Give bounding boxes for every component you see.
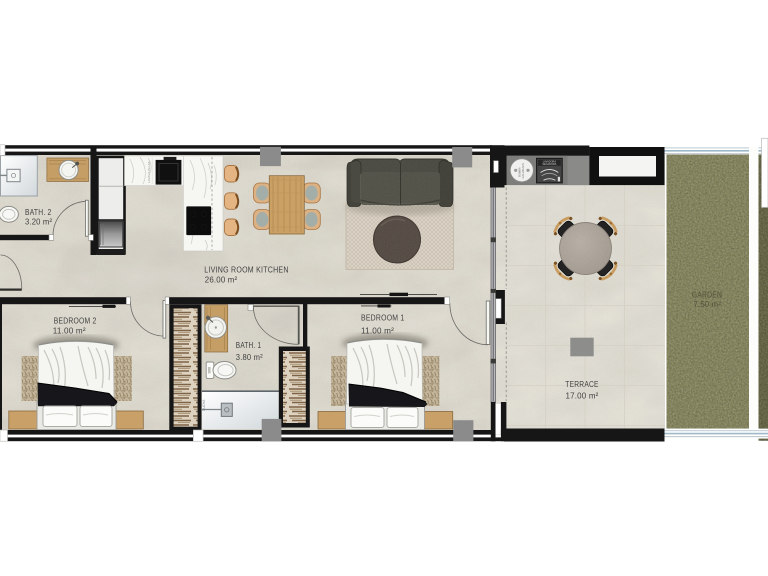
svg-text:SECADORA: SECADORA: [542, 163, 556, 166]
svg-text:LAVAVAJILLAS: LAVAVAJILLAS: [147, 161, 151, 183]
svg-text:BEDROOM 2: BEDROOM 2: [54, 316, 97, 326]
svg-text:BOMBA: BOMBA: [517, 167, 521, 177]
svg-text:11.00 m²: 11.00 m²: [53, 326, 86, 336]
svg-text:BEDROOM 1: BEDROOM 1: [361, 313, 405, 323]
svg-text:LIVING ROOM KITCHEN: LIVING ROOM KITCHEN: [204, 264, 288, 274]
svg-text:BATH. 2: BATH. 2: [25, 207, 52, 217]
svg-text:DUCHA: DUCHA: [202, 399, 206, 411]
svg-text:11.00 m²: 11.00 m²: [361, 325, 394, 335]
svg-text:3.80 m²: 3.80 m²: [236, 352, 263, 362]
svg-text:GARDEN: GARDEN: [692, 290, 722, 299]
svg-text:TERRACE: TERRACE: [565, 379, 598, 389]
svg-text:CALOR ACS: CALOR ACS: [521, 163, 525, 179]
svg-text:26.00 m²: 26.00 m²: [205, 275, 238, 285]
svg-text:3.20 m²: 3.20 m²: [25, 216, 52, 226]
svg-text:17.00 m²: 17.00 m²: [566, 390, 599, 400]
svg-text:BATH. 1: BATH. 1: [236, 340, 261, 350]
svg-text:7.50 m²: 7.50 m²: [694, 300, 722, 309]
